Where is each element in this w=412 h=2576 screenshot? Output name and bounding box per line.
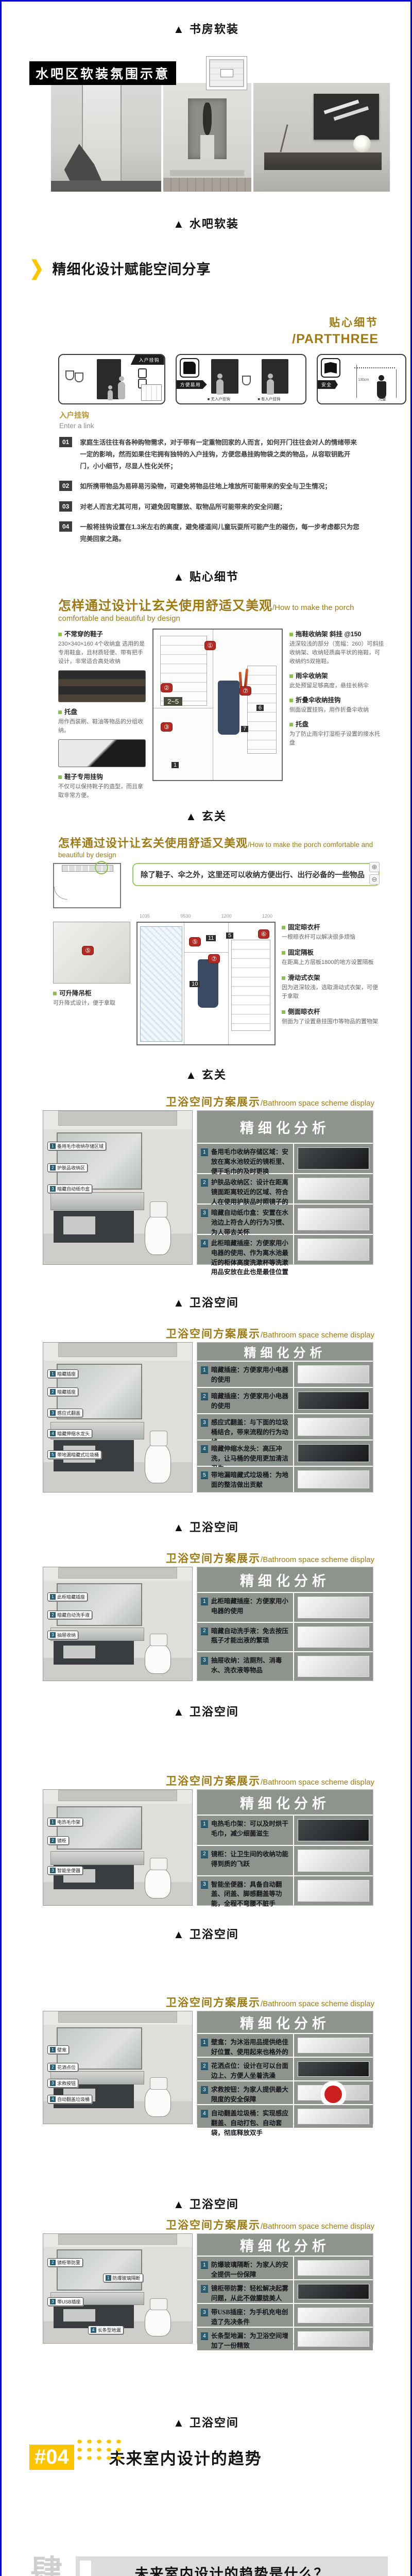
toilet — [145, 2087, 171, 2117]
toilet — [145, 1443, 171, 1483]
porch-heading: 怎样通过设计让玄关使用舒适又美观/How to make the porch c… — [58, 834, 374, 860]
dot-grid-decoration — [75, 2437, 124, 2463]
bathroom-render: 1壁龛 2花洒点位 3求救按钮 4自动翻盖垃圾桶 — [43, 2011, 193, 2124]
storage-note-bubble: 除了鞋子、伞之外，这里还可以收纳方便出行、出行必备的一些物品 — [132, 863, 380, 886]
wardrobe-elevation-sketch: 1035953012001200 ⑤ ⑥ ⑦ 5 10 11 — [136, 922, 276, 1045]
bathroom-heading: 卫浴空间方案展示/Bathroom space scheme display — [2, 1550, 374, 1566]
product-photo — [298, 1147, 369, 1170]
toilet — [145, 1868, 171, 1899]
analysis-title: 精细化分析 — [197, 1111, 373, 1143]
bathroom-render: 2镜柜带防雾 1防爆玻璃隔断 3带USB插座 4长条型地漏 — [43, 2233, 193, 2344]
question-block: 肆 未来室内设计的趋势是什么？ — [30, 2556, 388, 2576]
zoom-out-icon[interactable]: ⊖ — [369, 874, 380, 885]
caption-waterbar: ▲ 水吧软装 — [2, 215, 410, 231]
entry-card-corner-label: 入户挂钩 — [131, 355, 164, 365]
bathroom-panel: 1电热毛巾架 2镜柜 3智能坐便器 精细化分析 1电热毛巾架：可以及时烘干毛巾，… — [43, 1789, 373, 1906]
adult-silhouette — [118, 376, 125, 399]
red-badge: ① — [205, 641, 216, 650]
analysis-panel: 精细化分析 1备用毛巾收纳存储区域：安放在离水池较近的镜柜里、便于毛巾的及时更换… — [197, 1110, 373, 1265]
bathroom-panel: 1此柜暗藏插座 2暗藏自动洗手液 3抽屉收纳 精细化分析 1此柜暗藏插座：方便家… — [43, 1567, 373, 1681]
dimension-labels: 1035953012001200 — [138, 913, 274, 919]
analysis-title: 精细化分析 — [197, 2011, 373, 2033]
cabinet-elevation-sketch: ① ② 2~5 ③ ⑦ 1 6 7 — [152, 629, 283, 781]
list-item: 01 家庭生活往往有各种购物需求，对于带有一定重物回家的人而言，如何开门往往会对… — [59, 437, 361, 472]
entry-hook-title-block: 入户挂钩 Enter a link — [59, 410, 410, 430]
waterbar-photo-middle — [163, 83, 251, 192]
card2-caption-right: ■ 有入户挂钩 — [257, 396, 280, 402]
section-04-header: #04 未来室内设计的趋势 — [29, 2445, 410, 2470]
entry-hook-list: 01 家庭生活往往有各种购物需求，对于带有一定重物回家的人而言，如何开门往往会对… — [59, 437, 361, 545]
product-photo — [298, 1365, 369, 1383]
product-photo — [298, 2260, 369, 2276]
boot-hooks-photo — [58, 739, 146, 767]
question-title: 未来室内设计的趋势是什么？ — [135, 2563, 329, 2576]
floor-plan-thumbnail — [53, 863, 121, 908]
section-title: 未来室内设计的趋势 — [109, 2446, 262, 2469]
toilet — [145, 1214, 171, 1255]
annotation: 拖鞋收纳架 斜挂 @150 进深较浅的部分（宽幅：260）可斜挂收纳架、收纳轻质… — [289, 629, 385, 666]
bathroom-heading: 卫浴空间方案展示/Bathroom space scheme display — [2, 1326, 374, 1341]
annotation: 滑动式衣架 因为进深较浅，选取滑动式衣架，可便于拿取 — [282, 972, 380, 1001]
waterbar-photo-left — [51, 83, 161, 192]
analysis-title: 精细化分析 — [197, 1343, 373, 1361]
bathroom-heading: 卫浴空间方案展示/Bathroom space scheme display — [2, 2217, 374, 2232]
floorplan-thumbnail — [206, 56, 247, 90]
question-box: 未来室内设计的趋势是什么？ — [76, 2556, 388, 2576]
bathroom-render: 1暗藏插座 2暗藏插座 3感应式翻盖 4暗藏伸缩水龙头 5带地漏暗藏式垃圾桶 — [43, 1342, 193, 1493]
caption-bathroom: ▲ 卫浴空间 — [2, 2414, 410, 2430]
lift-cabinet-photo: ⑤ — [53, 922, 130, 984]
analysis-title: 精细化分析 — [197, 1790, 373, 1815]
list-item: 02 如所携带物品为易碎易污染物，可避免将物品往地上堆放所可能带来的安全与卫生情… — [59, 481, 361, 493]
caption-study: ▲ 书房软装 — [2, 20, 410, 37]
analysis-panel: 精细化分析 1防爆玻璃隔断：为家人的安全提供一份保障 2镜柜带防雾：轻松解决起雾… — [197, 2233, 373, 2344]
child-height-silhouette — [377, 375, 386, 399]
book-icon — [321, 358, 340, 378]
part-three-tag: /PARTTHREE — [2, 332, 379, 347]
bathroom-panel: 2镜柜带防雾 1防爆玻璃隔断 3带USB插座 4长条型地漏 精细化分析 1防爆玻… — [43, 2233, 373, 2344]
product-photo — [298, 1418, 369, 1436]
article-page: ▲ 书房软装 水吧区软装氛围示意 ▲ 水吧软装 ❯ 精细化设计赋能空间分享 贴心… — [0, 0, 412, 2576]
annotation: 固定隔板 在距离上方层板1800的地方设置隔板 — [282, 947, 380, 967]
height-label: 130cm — [358, 378, 369, 382]
waterbar-label: 水吧区软装氛围示意 — [29, 61, 176, 85]
product-photo — [298, 1239, 369, 1261]
caption-porch: ▲ 玄关 — [2, 1066, 410, 1082]
item-number: 01 — [59, 437, 72, 447]
entry-hook-subtitle: Enter a link — [59, 422, 410, 430]
section-heading-share: ❯ 精细化设计赋能空间分享 — [29, 258, 410, 278]
green-bullet-icon — [58, 633, 62, 636]
item-number: 02 — [59, 481, 72, 491]
product-photo — [298, 2038, 369, 2053]
caption-bathroom: ▲ 卫浴空间 — [2, 1925, 410, 1942]
chevron-icon: ❯ — [29, 258, 44, 278]
bathroom-panel: 1壁龛 2花洒点位 3求救按钮 4自动翻盖垃圾桶 精细化分析 1壁龛：为沐浴用品… — [43, 2011, 373, 2124]
section-number-badge: #04 — [29, 2445, 74, 2470]
caption-bathroom: ▲ 卫浴空间 — [2, 1703, 410, 1719]
waterbar-photo-right — [253, 83, 390, 192]
height-dotted-line — [354, 367, 394, 368]
product-photo — [298, 1444, 369, 1462]
entry-card-safety: 安全 130cm 儿童 — [317, 354, 406, 404]
hanging-coat — [218, 681, 239, 735]
list-item: 03 对老人而言尤其可用，可避免因弯腰放、取物品所可能带来的安全问题； — [59, 501, 361, 513]
annotation: 折叠伞收纳挂钩 侧面设置挂钩，用作折叠伞收纳 — [289, 694, 385, 715]
caption-porch: ▲ 玄关 — [2, 807, 410, 824]
porch-diagram-1: 不常穿的鞋子 230×340×160 4个收纳盒 选用的是专用鞋盒，且材质轻便、… — [58, 629, 385, 800]
annotation: 托盘 用作西装刷、鞋油等物品的分组收纳。 — [58, 706, 146, 735]
product-photo — [298, 1392, 369, 1410]
share-heading-text: 精细化设计赋能空间分享 — [53, 258, 211, 278]
entry-card-compare: 方便易用 ■ 无入户挂钩 ■ 有入户挂钩 — [176, 354, 306, 404]
floor-drain-photo — [298, 2331, 369, 2347]
product-photo — [298, 2284, 369, 2299]
bathroom-heading: 卫浴空间方案展示/Bathroom space scheme display — [2, 1094, 374, 1109]
annotation: 托盘 为了防止雨伞打湿柜子设置的接水托盘 — [289, 719, 385, 748]
analysis-panel: 精细化分析 1电热毛巾架：可以及时烘干毛巾，减少细菌滋生 2镜柜：让卫生间的收纳… — [197, 1789, 373, 1906]
red-sos-button — [324, 2086, 342, 2103]
annotation: 可升降吊柜 可升降式设计，便于拿取 — [53, 988, 130, 1008]
zoom-in-icon[interactable]: ⊕ — [369, 862, 380, 872]
annotation: 不常穿的鞋子 230×340×160 4个收纳盒 选用的是专用鞋盒，且材质轻便、… — [58, 629, 146, 666]
annotation: 固定晾衣杆 一根晾衣杆可以解决很多烦恼 — [282, 922, 380, 942]
bathroom-render: 1备用毛巾收纳存储区域 2护肤品收纳区 3暗藏自动纸巾盒 — [43, 1110, 193, 1265]
range-tag: 2~5 — [164, 697, 182, 706]
mini-floorplan — [141, 384, 162, 401]
analysis-panel: 精细化分析 1暗藏插座：方便家用小电器的使用 2暗藏插座：方便家用小电器的使用 … — [197, 1342, 373, 1493]
product-photo — [298, 1597, 369, 1618]
bathroom-render: 1电热毛巾架 2镜柜 3智能坐便器 — [43, 1789, 193, 1906]
thumbs-up-icon — [180, 358, 199, 378]
porch-diagram-2: ⊕ ⊖ 除了鞋子、伞之外，这里还可以收纳方便出行、出行必备的一些物品 ⑤ 可升降… — [53, 863, 380, 1045]
sos-button-photo — [298, 2085, 369, 2100]
entry-hook-cards: 入户挂钩 方便易用 ■ 无入户挂钩 ■ 有入户挂钩 安全 — [58, 354, 406, 404]
number-tag: 5 — [226, 933, 233, 939]
waterbar-montage: 水吧区软装氛围示意 — [22, 60, 390, 192]
product-photo — [298, 1178, 369, 1200]
card3-banner: 安全 — [318, 380, 338, 389]
shoe-box-photo — [58, 670, 146, 702]
analysis-panel: 精细化分析 1此柜暗藏插座：方便家用小电器的使用 2暗藏自动洗手液：免去按压瓶子… — [197, 1567, 373, 1681]
caption-bathroom: ▲ 卫浴空间 — [2, 1518, 410, 1535]
bathroom-heading: 卫浴空间方案展示/Bathroom space scheme display — [2, 1773, 374, 1788]
entry-hook-title: 入户挂钩 — [59, 410, 410, 420]
product-photo — [298, 2109, 369, 2124]
item-number: 04 — [59, 521, 72, 532]
list-item: 04 一般将挂钩设置在1.3米左右的高度，避免楼道间儿童玩耍所可能产生的碰伤，每… — [59, 521, 361, 545]
product-photo — [298, 1850, 369, 1872]
child-silhouette — [108, 385, 113, 400]
sliding-door-hatch — [140, 926, 182, 1042]
analysis-title: 精细化分析 — [197, 2234, 373, 2256]
part-three-title: 贴心细节 — [2, 314, 379, 330]
bathroom-render: 1此柜暗藏插座 2暗藏自动洗手液 3抽屉收纳 — [43, 1567, 193, 1681]
bathroom-heading: 卫浴空间方案展示/Bathroom space scheme display — [2, 1994, 374, 2010]
socket-photo — [298, 2308, 369, 2323]
entry-card-scene: 入户挂钩 — [58, 354, 165, 404]
caption-bathroom: ▲ 卫浴空间 — [2, 1294, 410, 1310]
toilet — [145, 1643, 171, 1674]
toilet — [145, 2307, 171, 2336]
product-photo — [298, 1470, 369, 1488]
hook-icon — [138, 368, 147, 378]
annotation: 雨伞收纳架 此处预留足够高度，悬挂长柄伞 — [289, 670, 385, 690]
bathroom-panel: 1暗藏插座 2暗藏插座 3感应式翻盖 4暗藏伸缩水龙头 5带地漏暗藏式垃圾桶 精… — [43, 1342, 373, 1493]
annotation: 侧面晾衣杆 侧面为了设置悬挂围巾等物品的置物架 — [282, 1006, 380, 1026]
analysis-title: 精细化分析 — [197, 1567, 373, 1592]
analysis-panel: 精细化分析 1壁龛：为沐浴用品提供绝佳好位置、使用起来也格外的方便 2花洒点位：… — [197, 2011, 373, 2124]
part-three-block: 贴心细节 /PARTTHREE — [2, 314, 379, 347]
product-photo — [298, 1626, 369, 1648]
red-badge: ⑤ — [190, 938, 200, 946]
highlight-circle — [95, 861, 108, 874]
card2-banner: 方便易用 — [177, 380, 207, 389]
chinese-numeral: 肆 — [30, 2556, 62, 2576]
annotation: 鞋子专用挂钩 不仅可以保持靴子的造型，而且拿取非常方便。 — [58, 771, 146, 800]
caption-tips: ▲ 贴心细节 — [2, 568, 410, 584]
card2-caption-left: ■ 无入户挂钩 — [208, 396, 230, 402]
product-photo — [298, 1819, 369, 1841]
product-photo — [298, 1656, 369, 1677]
item-number: 03 — [59, 501, 72, 512]
porch-heading: 怎样通过设计让玄关使用舒适又美观/How to make the porch c… — [58, 596, 374, 623]
product-photo — [298, 1880, 369, 1902]
number-tag: 1 — [171, 762, 179, 768]
caption-bathroom: ▲ 卫浴空间 — [2, 2195, 410, 2212]
product-photo — [298, 2061, 369, 2077]
hanging-coat — [198, 959, 218, 1008]
bathroom-panel: 1备用毛巾收纳存储区域 2护肤品收纳区 3暗藏自动纸巾盒 精细化分析 1备用毛巾… — [43, 1110, 373, 1265]
product-photo — [298, 1208, 369, 1230]
notch-decoration — [80, 2561, 91, 2576]
figure-label: 儿童 — [379, 396, 386, 402]
